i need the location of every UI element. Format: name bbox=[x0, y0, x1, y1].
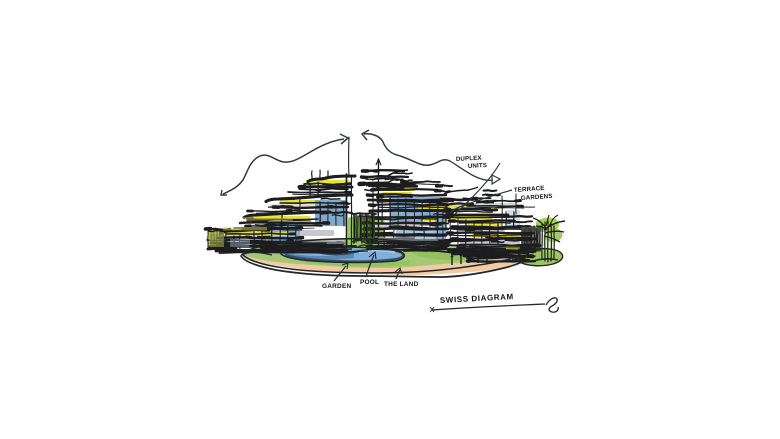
svg-text:POOL: POOL bbox=[360, 279, 379, 286]
svg-text:UNITS: UNITS bbox=[468, 162, 487, 170]
svg-text:THE LAND: THE LAND bbox=[384, 281, 419, 288]
svg-text:GARDEN: GARDEN bbox=[322, 283, 351, 290]
